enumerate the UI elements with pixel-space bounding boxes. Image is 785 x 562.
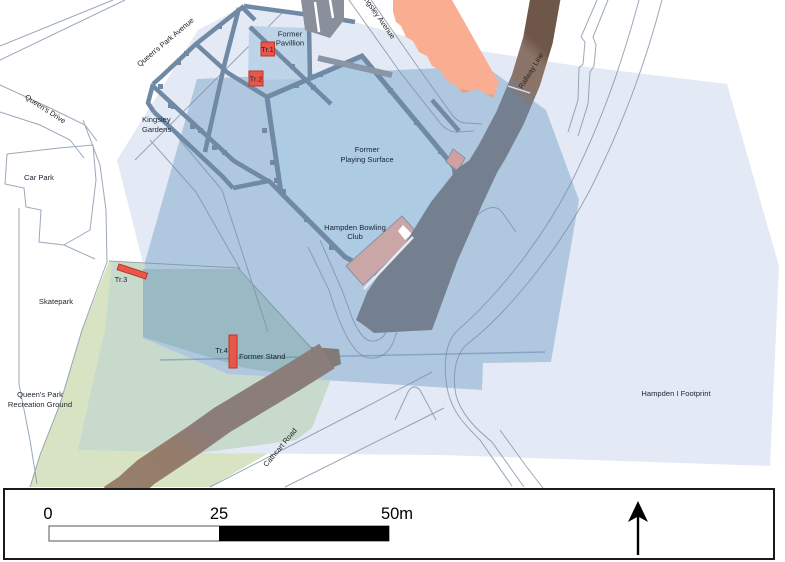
svg-text:Skatepark: Skatepark [39,297,73,306]
svg-text:Kingsley: Kingsley [142,115,171,124]
svg-text:Former: Former [355,145,380,154]
svg-text:Tr.1: Tr.1 [261,45,274,54]
svg-text:Tr.4: Tr.4 [215,346,228,355]
svg-text:Pavillion: Pavillion [276,39,304,48]
svg-text:Former Stand: Former Stand [239,352,285,361]
svg-text:Hampden Bowling: Hampden Bowling [324,223,386,232]
svg-text:0: 0 [43,505,52,523]
svg-text:Playing Surface: Playing Surface [340,155,393,164]
svg-text:Club: Club [347,232,363,241]
svg-text:Former: Former [278,30,303,39]
svg-text:25: 25 [210,505,228,523]
svg-text:Queen's Park: Queen's Park [17,390,63,399]
svg-text:Tr.3: Tr.3 [115,275,128,284]
svg-text:Hampden I Footprint: Hampden I Footprint [641,389,711,398]
svg-text:Tr.2: Tr.2 [250,75,263,84]
svg-text:50m: 50m [381,505,413,523]
svg-text:Recreation Ground: Recreation Ground [8,400,72,409]
svg-text:Car Park: Car Park [24,173,54,182]
svg-text:Gardens: Gardens [142,125,171,134]
